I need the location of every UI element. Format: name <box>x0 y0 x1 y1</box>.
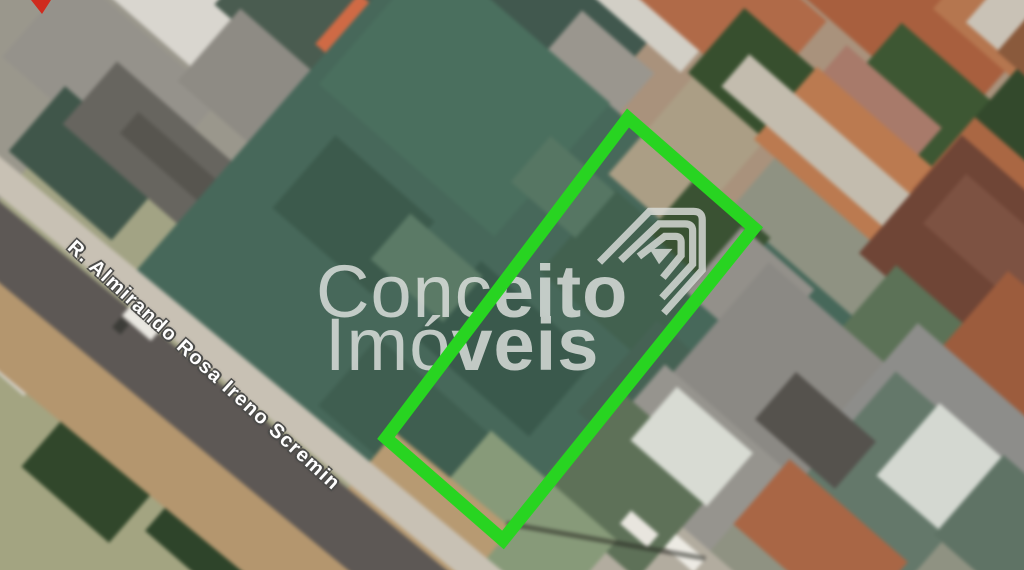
watermark-brand-line2: Imóveis <box>325 308 599 382</box>
conceito-imoveis-logo-icon <box>588 197 708 317</box>
watermark-text-thin: Imó <box>325 303 451 386</box>
watermark-text-bold: veis <box>451 303 599 386</box>
watermark: Conceito Imóveis <box>0 0 1024 570</box>
satellite-photo-view: R. Almirando Rosa Ireno Scremin Conceito… <box>0 0 1024 570</box>
map-pin-icon <box>28 0 54 14</box>
